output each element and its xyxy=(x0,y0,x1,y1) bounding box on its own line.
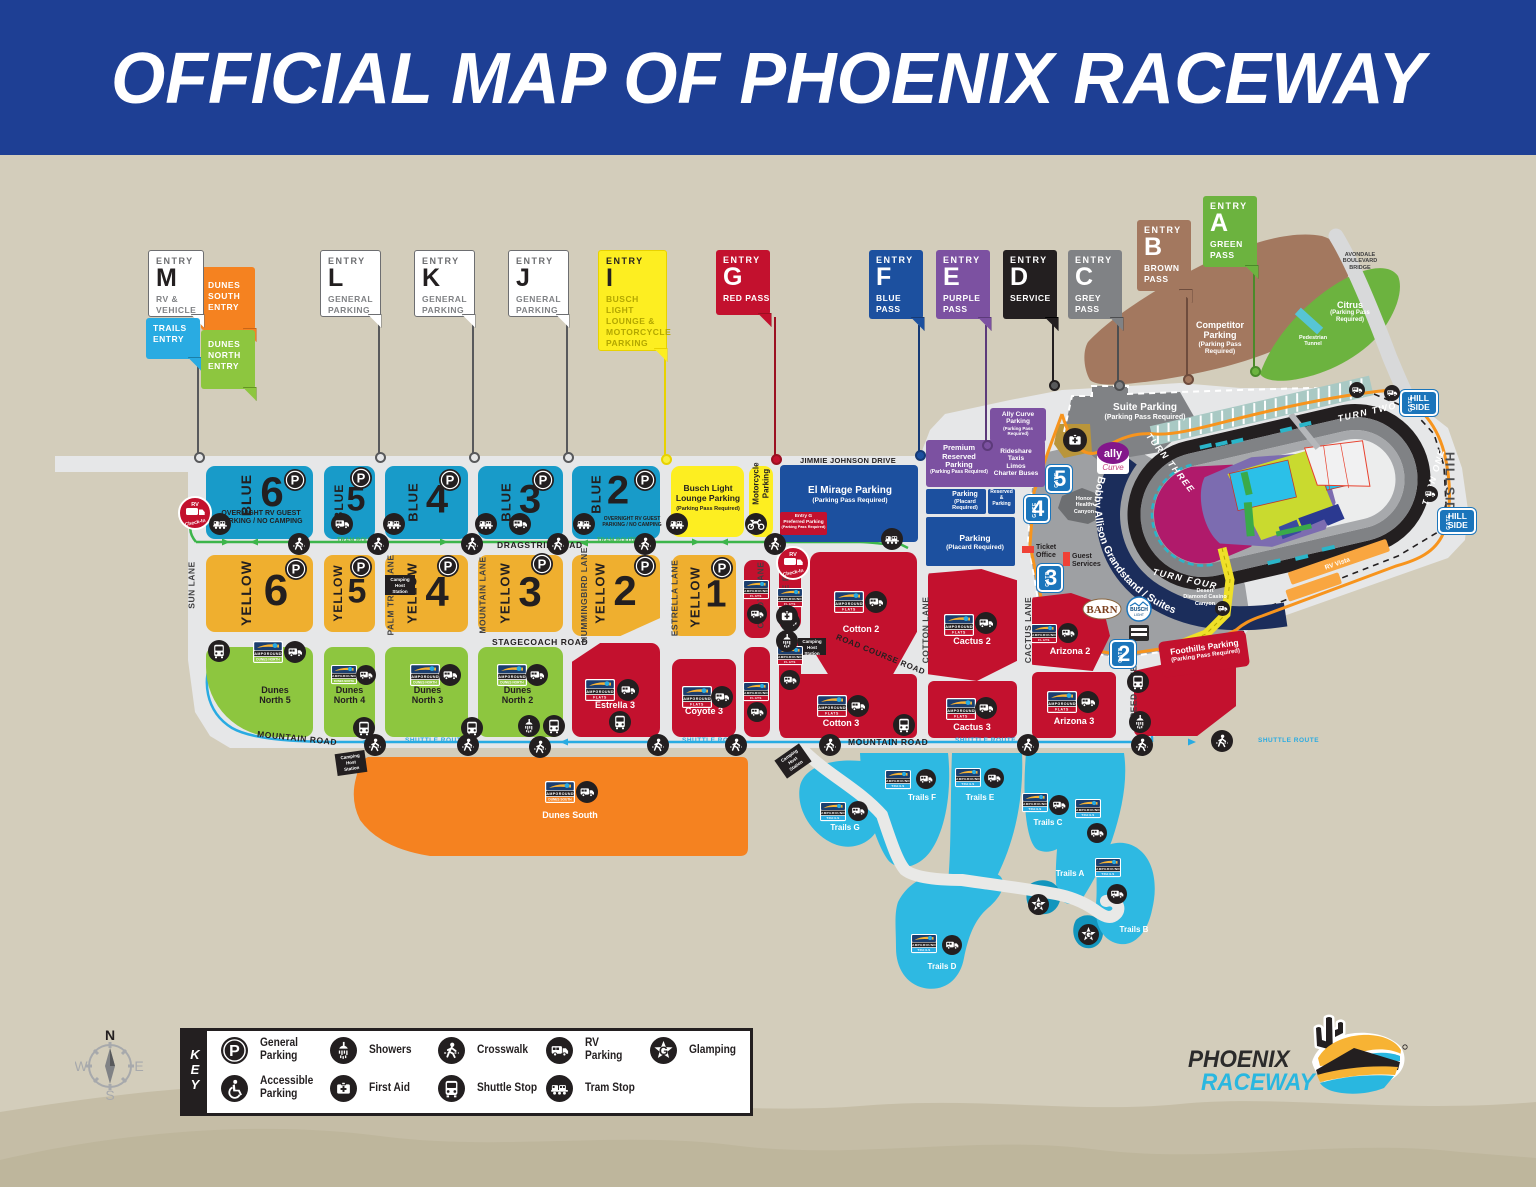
svg-text:E: E xyxy=(134,1058,143,1074)
svg-text:Bobby Allison Grandstand / Sui: Bobby Allison Grandstand / Suites xyxy=(1092,475,1178,616)
svg-text:S: S xyxy=(105,1087,114,1102)
svg-text:RV: RV xyxy=(191,502,199,508)
svg-text:RV: RV xyxy=(789,552,797,558)
svg-text:W: W xyxy=(75,1058,88,1074)
svg-text:N: N xyxy=(105,1030,115,1043)
